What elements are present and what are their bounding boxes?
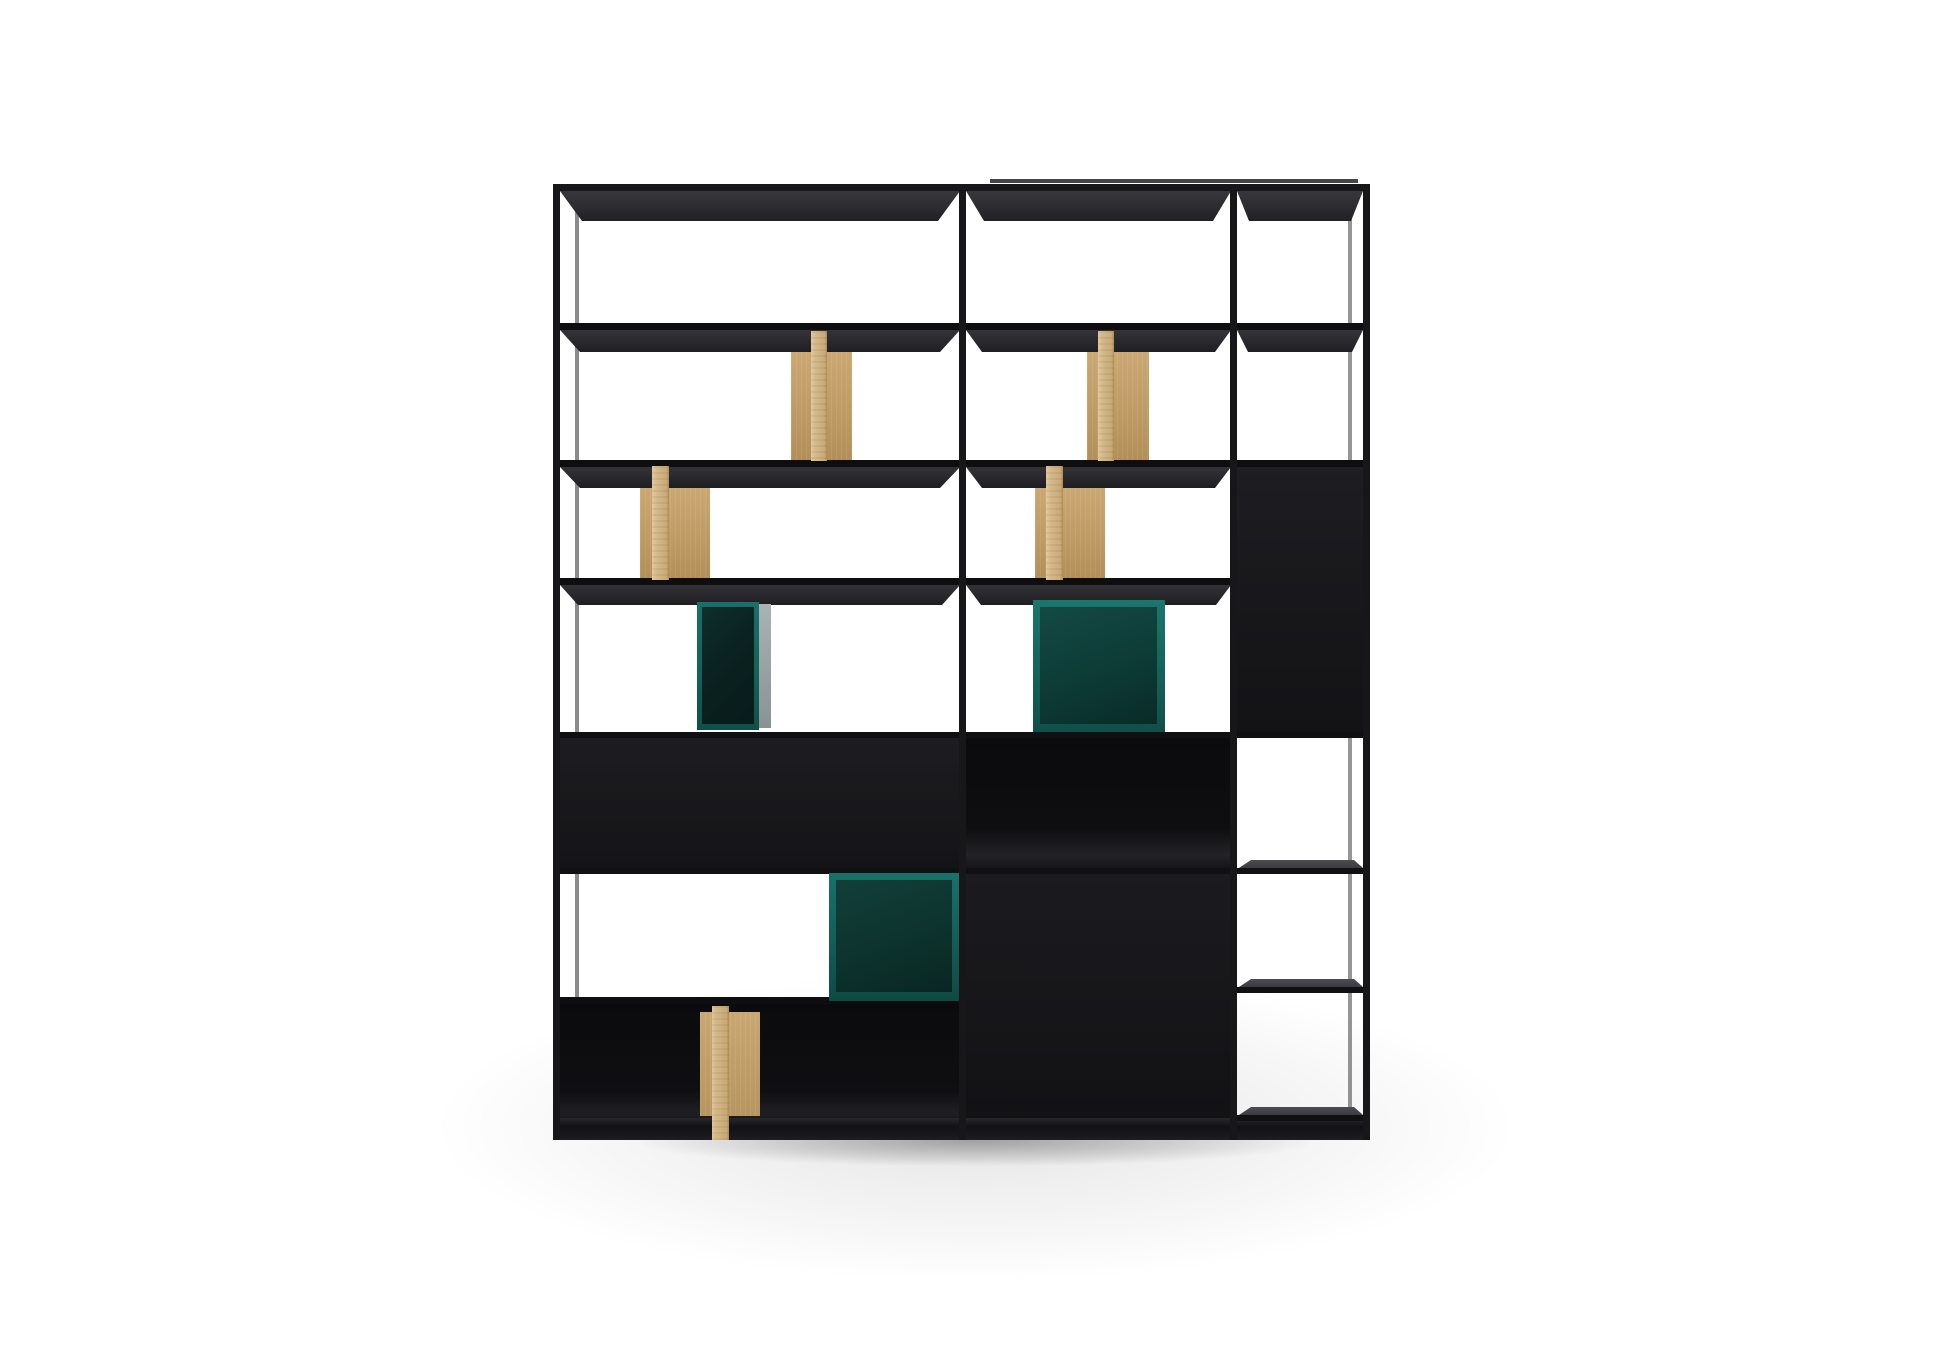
row2-divider-wood-board-middle [1098,331,1114,461]
top-shelf-underside-right [1237,191,1363,221]
right-shelf1-edge [1237,868,1363,874]
right-column-panel [1237,460,1370,732]
frame-post-right [1363,184,1370,1140]
row3-divider-wood-board-middle [1046,466,1063,580]
middle-tall-cabinet [966,874,1232,1137]
right-shelf2-top-face [1239,979,1363,987]
bottom-divider-wood-board [712,1006,729,1140]
bottom-open-compartment [558,1004,962,1125]
frame-post-left [553,184,560,1140]
shelf3-underside-left [560,467,960,488]
shelf2-underside-left [560,330,960,352]
right-shelf1-top-face [1239,860,1363,868]
middle-open-compartment [966,738,1232,871]
back-top-rail [990,179,1358,183]
teal-box-small-interior [702,607,754,724]
row3-divider-wood-board-left [652,466,669,580]
row2-divider-wood-panel-middle [1087,352,1149,460]
bottom-divider-wood-panel [700,1012,760,1116]
shelf2-underside-right [1237,330,1363,352]
teal-box-bottom-interior [836,880,952,992]
teal-box-middle-interior [1040,607,1157,724]
left-closed-cabinet [558,738,962,871]
right-shelf3-top-face [1239,1107,1363,1115]
shelf4-underside-left [560,585,960,605]
top-shelf-underside-middle [966,191,1231,221]
shelf3-underside-middle [966,467,1231,488]
frame-post-divider2 [1230,184,1237,1140]
right-shelf3-edge [1237,1115,1363,1121]
row3-divider-wood-panel-left [640,488,710,578]
bookshelf-product-photo [0,0,1946,1355]
right-shelf2-edge [1237,987,1363,993]
top-shelf-underside-left [560,191,960,221]
frame-post-divider1 [959,184,966,1140]
teal-box-small-side [759,604,771,728]
row2-divider-wood-board-left [811,331,827,461]
